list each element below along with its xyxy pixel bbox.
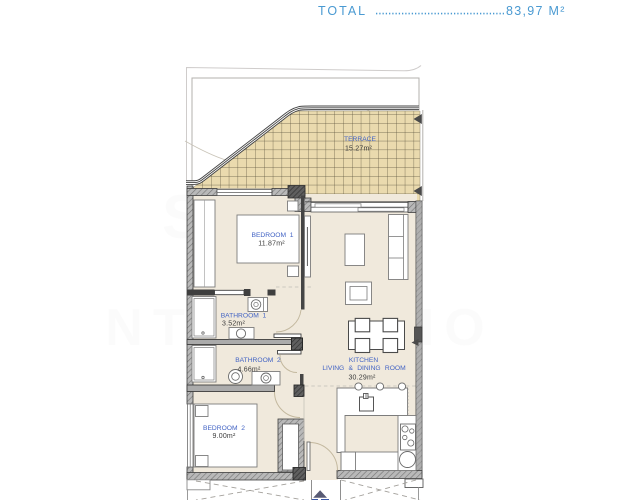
svg-text:83,97 M²: 83,97 M² [506, 4, 566, 18]
svg-text:11.87m²: 11.87m² [258, 241, 285, 248]
svg-text:30.29m²: 30.29m² [348, 375, 376, 382]
svg-text:BATHROOM 2: BATHROOM 2 [235, 357, 281, 364]
svg-text:TOTAL: TOTAL [318, 4, 367, 18]
svg-text:9.00m²: 9.00m² [213, 433, 236, 440]
svg-text:BEDROOM 2: BEDROOM 2 [203, 425, 245, 432]
svg-text:BEDROOM 1: BEDROOM 1 [252, 232, 294, 239]
svg-text:KITCHEN: KITCHEN [349, 357, 379, 364]
svg-text:4.66m²: 4.66m² [238, 367, 261, 374]
svg-text:LIVING & DINING ROOM: LIVING & DINING ROOM [322, 365, 406, 372]
svg-text:3.52m²: 3.52m² [222, 321, 245, 328]
svg-text:TERRACE: TERRACE [344, 136, 376, 143]
svg-text:BATHROOM 1: BATHROOM 1 [221, 313, 267, 320]
svg-text:15.27m²: 15.27m² [345, 146, 373, 153]
